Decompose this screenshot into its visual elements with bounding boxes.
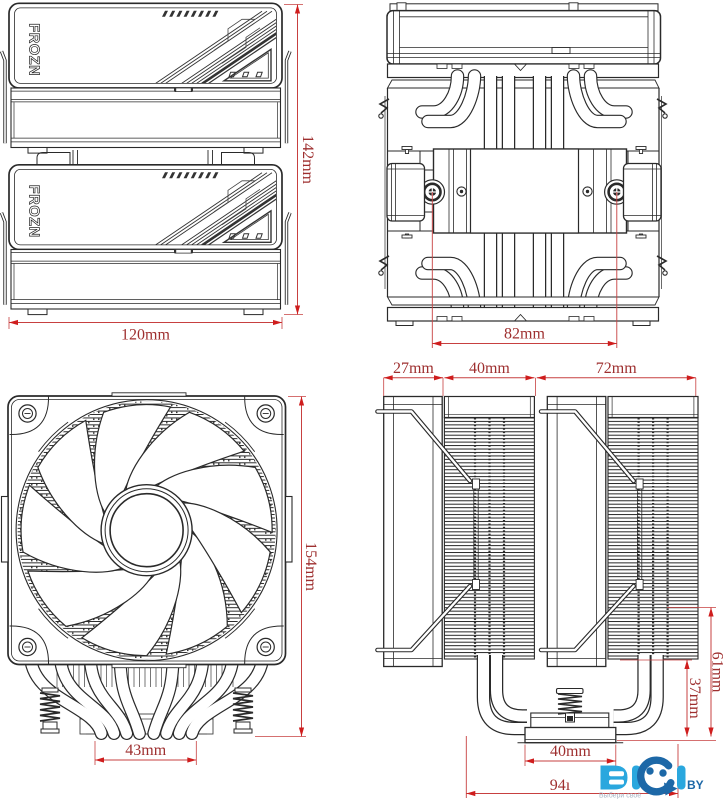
svg-text:37mm: 37mm — [686, 678, 703, 719]
svg-text:61mm: 61mm — [709, 652, 723, 693]
svg-text:BY: BY — [687, 778, 704, 792]
svg-text:40mm: 40mm — [469, 360, 510, 377]
svg-text:27mm: 27mm — [393, 360, 434, 377]
svg-text:142mm: 142mm — [299, 135, 316, 184]
svg-text:43mm: 43mm — [125, 742, 166, 759]
svg-text:FROZN: FROZN — [26, 23, 42, 76]
svg-text:40mm: 40mm — [550, 743, 591, 760]
svg-text:120mm: 120mm — [121, 327, 170, 344]
svg-text:FROZN: FROZN — [26, 185, 42, 238]
svg-text:154mm: 154mm — [302, 542, 319, 591]
svg-text:72mm: 72mm — [596, 360, 637, 377]
svg-text:94ı: 94ı — [550, 777, 571, 794]
svg-text:Выбери своё: Выбери своё — [599, 792, 641, 800]
svg-text:82mm: 82mm — [504, 326, 545, 343]
